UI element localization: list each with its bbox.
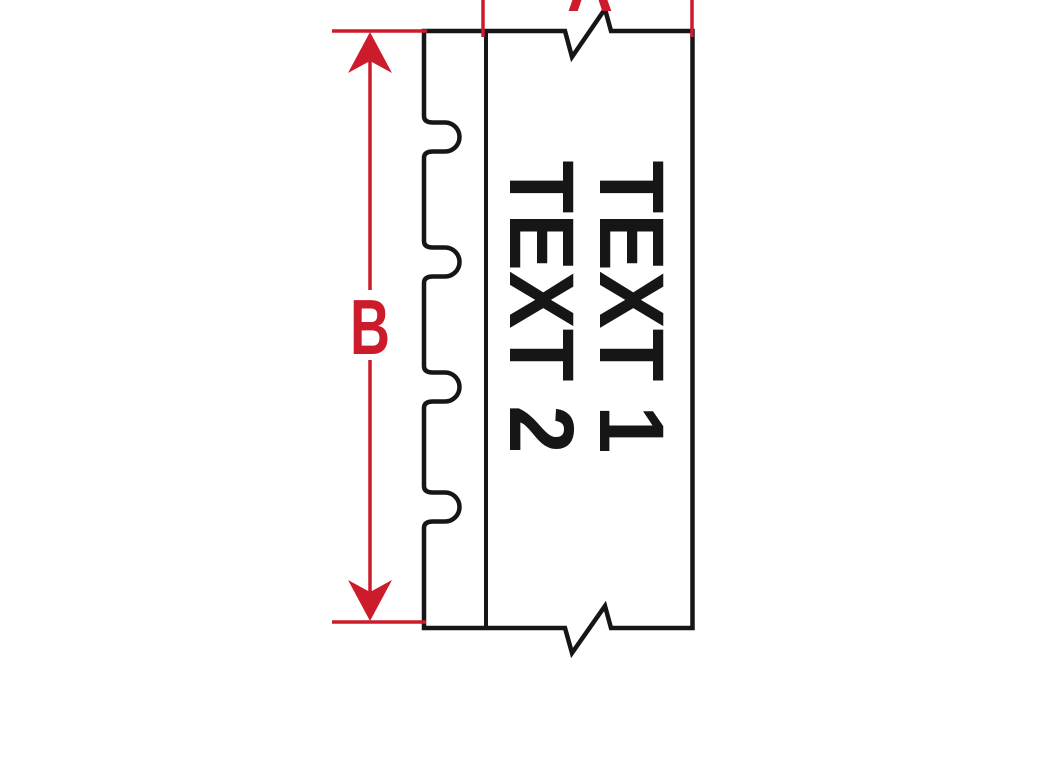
sleeve-text-line1: TEXT 1 (580, 161, 682, 454)
dim-a-label: A (567, 0, 613, 25)
sleeve-text-line2: TEXT 2 (490, 161, 592, 454)
label-dimension-diagram: TEXT 1 TEXT 2 B A (0, 0, 1062, 780)
dim-b-label: B (350, 283, 390, 371)
